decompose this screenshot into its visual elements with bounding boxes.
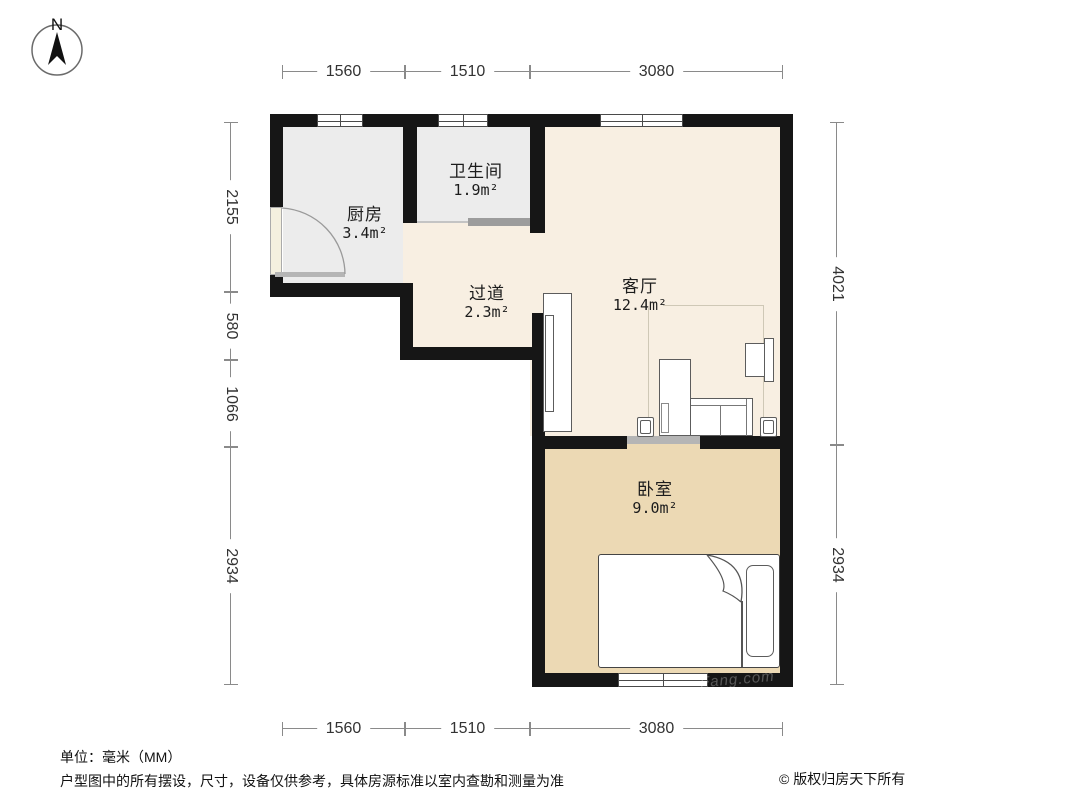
dim-left-580-value: 580 — [222, 304, 240, 349]
wall-kitchen-bottom — [270, 283, 413, 297]
wall-bathroom-right — [530, 127, 545, 233]
sofa-back-line — [691, 405, 746, 406]
dim-left-2155-value: 2155 — [222, 180, 240, 234]
dim-bottom-1560: 1560 — [282, 722, 405, 736]
bedroom-window-icon — [618, 673, 708, 687]
living-window-icon — [600, 114, 683, 127]
dim-top-3080-value: 3080 — [630, 63, 684, 81]
sofa-seat — [690, 398, 753, 436]
bedroom-door-leaf — [627, 436, 700, 444]
kitchen-label: 厨房 3.4m² — [342, 205, 387, 242]
living-leader-line-left — [648, 308, 649, 417]
kitchen-door-swing-arc — [275, 205, 347, 277]
dim-top-1560-value: 1560 — [317, 63, 371, 81]
footer-disclaimer: 户型图中的所有摆设，尺寸，设备仅供参考，具体房源标准以室内查勘和测量为准 — [60, 771, 564, 791]
dim-bottom-3080: 3080 — [530, 722, 783, 736]
dim-left-2155: 2155 — [224, 122, 238, 292]
bathroom-door-leaf — [468, 218, 530, 226]
bathroom-threshold-line — [417, 221, 468, 223]
bathroom-name: 卫生间 — [449, 162, 503, 182]
hallway-area: 2.3 — [464, 303, 491, 321]
hallway-name: 过道 — [464, 284, 509, 304]
dim-left-2934: 2934 — [224, 447, 238, 685]
side-table-right-inner — [763, 420, 774, 434]
dim-left-2934-value: 2934 — [222, 539, 240, 593]
footer-copyright: © 版权归房天下所有 — [779, 769, 905, 789]
compass-north-label: N — [51, 15, 63, 34]
wall-divider-left — [545, 436, 627, 449]
dim-top-1510-value: 1510 — [441, 63, 495, 81]
bathroom-label: 卫生间 1.9m² — [449, 162, 503, 199]
dim-top-1560: 1560 — [282, 65, 405, 79]
dim-right-4021: 4021 — [830, 122, 844, 445]
hallway-label: 过道 2.3m² — [464, 284, 509, 321]
bathroom-window-icon — [438, 114, 488, 127]
floor-plan-canvas: N — [0, 0, 1066, 800]
dim-top-1510: 1510 — [405, 65, 530, 79]
dim-bottom-3080-value: 3080 — [630, 720, 684, 738]
dim-left-1066-value: 1066 — [222, 377, 240, 431]
dim-bottom-1510-value: 1510 — [441, 720, 495, 738]
north-compass-icon: N — [20, 6, 94, 90]
kitchen-area: 3.4 — [342, 224, 369, 242]
sofa-armrest-line — [746, 399, 747, 436]
wall-bathroom-left — [403, 127, 417, 223]
dim-right-2934-value: 2934 — [828, 538, 846, 592]
armchair-back — [764, 338, 774, 382]
armchair-seat — [745, 343, 766, 377]
living-leader-line-top — [663, 305, 763, 306]
bedroom-name: 卧室 — [632, 480, 677, 500]
footer-unit-note: 单位：毫米（MM） — [60, 747, 181, 767]
wall-divider-right — [700, 436, 793, 449]
dim-right-2934: 2934 — [830, 445, 844, 685]
bathroom-area: 1.9 — [453, 181, 480, 199]
kitchen-name: 厨房 — [342, 205, 387, 225]
wall-step-horizontal — [413, 347, 533, 360]
kitchen-window-icon — [317, 114, 363, 127]
living-area: 12.4 — [613, 296, 649, 314]
dim-left-580: 580 — [224, 292, 238, 360]
bedroom-area: 9.0 — [632, 499, 659, 517]
sofa-chaise-cushion — [661, 403, 669, 433]
dim-top-3080: 3080 — [530, 65, 783, 79]
dim-left-1066: 1066 — [224, 360, 238, 447]
dim-right-4021-value: 4021 — [828, 257, 846, 311]
living-name: 客厅 — [613, 277, 667, 297]
wall-step-vertical — [400, 283, 413, 360]
side-table-left-inner — [640, 420, 651, 434]
bed-blanket-fold — [700, 550, 785, 675]
sofa-cushion-line — [720, 405, 721, 436]
dim-bottom-1560-value: 1560 — [317, 720, 371, 738]
dim-bottom-1510: 1510 — [405, 722, 530, 736]
wall-left-upper — [270, 114, 283, 207]
bedroom-label: 卧室 9.0m² — [632, 480, 677, 517]
tv-screen — [545, 315, 554, 412]
living-label: 客厅 12.4m² — [613, 277, 667, 314]
